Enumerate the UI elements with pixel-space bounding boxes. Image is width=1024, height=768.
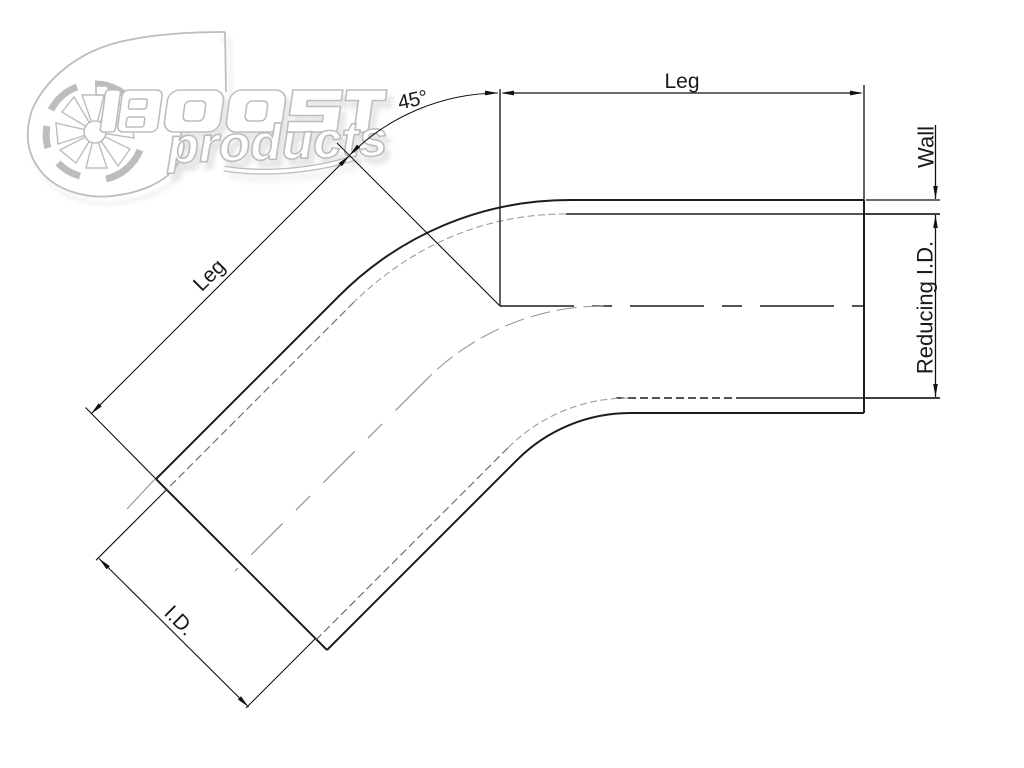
svg-text:Wall: Wall [914, 126, 939, 168]
svg-text:45°: 45° [396, 86, 430, 115]
svg-text:Reducing I.D.: Reducing I.D. [913, 241, 938, 374]
svg-text:Leg: Leg [189, 255, 230, 296]
svg-text:I.D.: I.D. [159, 601, 198, 640]
svg-text:Leg: Leg [664, 70, 699, 93]
